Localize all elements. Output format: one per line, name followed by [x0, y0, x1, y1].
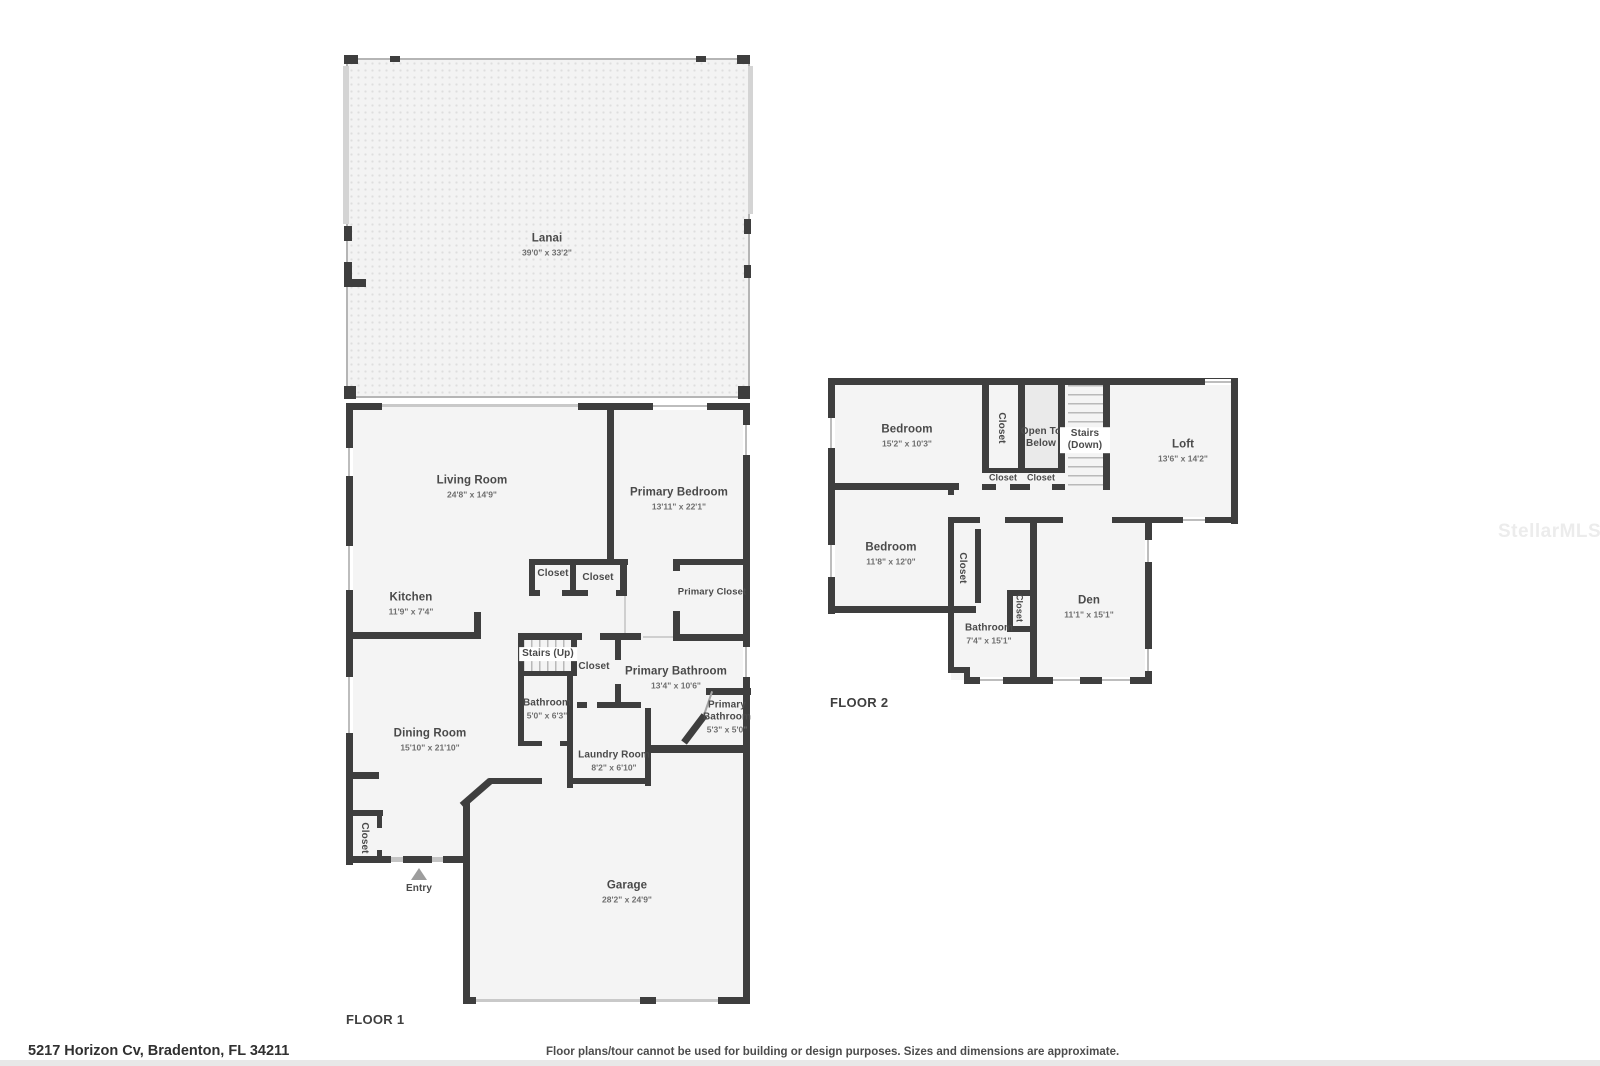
- room-name: Primary Closet: [678, 586, 746, 597]
- wall: [743, 403, 750, 425]
- property-address: 5217 Horizon Cv, Bradenton, FL 34211: [28, 1043, 289, 1059]
- wall: [828, 378, 835, 418]
- room-label-bathroom: Bathroom 5'0" x 6'3": [523, 698, 571, 721]
- opening-line: [643, 636, 673, 638]
- wall: [578, 403, 653, 410]
- wall: [828, 378, 1238, 385]
- wall: [1018, 378, 1025, 470]
- wall: [616, 590, 627, 596]
- room-label-closet: Closet: [1014, 594, 1025, 622]
- wall: [743, 455, 750, 647]
- room-dims: 13'4" x 10'6": [625, 680, 727, 690]
- room-dims: 7'4" x 15'1": [965, 635, 1013, 645]
- room-label-primary-bathroom-2: Primary Bathroom 5'3" x 5'0": [696, 700, 758, 735]
- room-dims: 28'2" x 24'9": [602, 894, 652, 904]
- screen-panel: [343, 66, 349, 224]
- room-name: Bathroom: [965, 623, 1013, 635]
- room-label-living-room: Living Room 24'8" x 14'9": [437, 475, 508, 500]
- room-label-den: Den 11'1" x 15'1": [1064, 595, 1113, 620]
- room-name: Bathroom: [523, 698, 571, 710]
- room-label-closet: Closet: [989, 473, 1017, 484]
- wall: [1010, 484, 1030, 490]
- room-name: Primary Bathroom: [696, 700, 758, 724]
- wall: [443, 856, 470, 863]
- room-dims: 11'8" x 12'0": [865, 556, 916, 566]
- room-name: Bedroom: [881, 424, 932, 438]
- wall: [529, 559, 628, 565]
- room-name: Loft: [1158, 439, 1208, 453]
- lanai-post: [344, 279, 366, 287]
- wall: [463, 997, 476, 1004]
- room-label-lanai: Lanai 39'0" x 33'2": [522, 233, 572, 258]
- window-marker: [1145, 649, 1152, 671]
- room-label-stairs-up: Stairs (Up): [519, 647, 577, 661]
- wall: [518, 741, 542, 746]
- wall: [828, 483, 959, 490]
- wall: [673, 559, 750, 565]
- wall: [1231, 378, 1238, 524]
- floor1-title: FLOOR 1: [346, 1012, 404, 1027]
- room-name: Closet: [995, 412, 1007, 443]
- screen-panel: [748, 66, 753, 214]
- floorplan-canvas: Lanai 39'0" x 33'2" Living Room 24'8" x …: [0, 0, 1600, 1066]
- room-label-dining-room: Dining Room 15'10" x 21'10": [394, 728, 467, 753]
- room-label-garage: Garage 28'2" x 24'9": [602, 880, 652, 905]
- wall: [377, 816, 382, 828]
- wall: [718, 997, 750, 1004]
- lanai-post: [744, 219, 751, 234]
- wall: [346, 632, 481, 639]
- wall: [529, 590, 540, 596]
- wall: [346, 733, 353, 865]
- room-name: Closet: [956, 552, 968, 583]
- lanai-post: [696, 56, 706, 62]
- room-dims: 15'10" x 21'10": [394, 742, 467, 752]
- wall: [948, 606, 954, 667]
- room-name: Lanai: [522, 233, 572, 247]
- room-name: Garage: [602, 880, 652, 894]
- room-label-loft: Loft 13'6" x 14'2": [1158, 439, 1208, 464]
- lanai-post: [390, 56, 400, 62]
- window-marker: [980, 677, 1003, 684]
- room-label-kitchen: Kitchen 11'9" x 7'4": [389, 592, 434, 617]
- wall: [948, 523, 954, 606]
- room-name: Primary Bedroom: [630, 487, 728, 501]
- room-name: Primary Bathroom: [625, 666, 727, 680]
- window-marker: [1145, 540, 1152, 562]
- lanai-post: [344, 226, 352, 241]
- wall: [474, 612, 481, 639]
- room-dims: 5'0" x 6'3": [523, 710, 571, 720]
- room-label-bathroom-2: Bathroom 7'4" x 15'1": [965, 623, 1013, 646]
- wall: [597, 702, 641, 708]
- wall: [1052, 484, 1065, 490]
- wall: [562, 590, 588, 596]
- wall: [1058, 378, 1065, 470]
- wall: [346, 856, 391, 863]
- wall: [828, 448, 835, 545]
- room-name: Entry: [406, 883, 432, 895]
- wall: [573, 778, 651, 784]
- window-marker: [743, 647, 750, 677]
- room-label-closet: Closet: [582, 572, 613, 584]
- wall: [346, 476, 353, 546]
- room-name: Closet: [358, 822, 370, 853]
- wall: [982, 378, 989, 470]
- room-label-primary-bedroom: Primary Bedroom 13'11" x 22'1": [630, 487, 728, 512]
- room-label-closet: Closet: [995, 412, 1007, 443]
- room-dims: 15'2" x 10'3": [881, 438, 932, 448]
- lanai-post: [737, 55, 750, 64]
- room-name: Closet: [578, 661, 609, 673]
- garage-door-opening: [476, 999, 640, 1002]
- room-label-bedroom-2: Bedroom 11'8" x 12'0": [865, 542, 916, 567]
- window-marker: [346, 546, 353, 590]
- wall: [615, 684, 621, 703]
- garage-interior: [463, 750, 747, 1002]
- floor2-title: FLOOR 2: [830, 695, 888, 710]
- window-marker: [1183, 517, 1205, 523]
- room-name: Kitchen: [389, 592, 434, 606]
- wall: [640, 997, 656, 1004]
- lanai-post: [738, 386, 750, 399]
- room-label-hall-closet: Closet: [578, 661, 609, 673]
- entry-label: Entry: [406, 883, 432, 895]
- lanai-post: [744, 265, 751, 278]
- window-marker: [346, 448, 353, 476]
- lanai-post: [344, 55, 358, 64]
- room-name: Stairs (Down): [1063, 428, 1107, 452]
- stellar-mls-watermark: StellarMLS: [1498, 521, 1600, 543]
- wall: [489, 778, 542, 784]
- room-label-laundry-room: Laundry Room 8'2" x 6'10": [578, 750, 650, 773]
- opening-line: [624, 596, 626, 634]
- room-label-closet: Closet: [956, 552, 968, 583]
- room-label-closet: Closet: [537, 568, 568, 580]
- window-marker: [346, 677, 353, 733]
- wall: [1030, 523, 1037, 683]
- window-marker: [828, 545, 835, 577]
- wall: [346, 403, 353, 448]
- lanai-area: [346, 58, 750, 398]
- wall: [615, 640, 621, 660]
- room-dims: 11'1" x 15'1": [1064, 609, 1113, 619]
- room-dims: 39'0" x 33'2": [522, 247, 572, 257]
- wall: [975, 529, 981, 603]
- room-name: Den: [1064, 595, 1113, 609]
- wall: [403, 856, 432, 863]
- wall: [948, 483, 954, 495]
- room-name: Laundry Room: [578, 750, 650, 762]
- room-name: Closet: [1027, 473, 1055, 484]
- room-name: Closet: [989, 473, 1017, 484]
- room-label-primary-bathroom: Primary Bathroom 13'4" x 10'6": [625, 666, 727, 691]
- wall: [346, 772, 379, 779]
- door-threshold: [391, 857, 403, 862]
- room-dims: 8'2" x 6'10": [578, 762, 650, 772]
- room-label-stairs-down: Stairs (Down): [1060, 427, 1110, 453]
- room-label-entry-closet: Closet: [358, 822, 370, 853]
- window-marker: [653, 403, 707, 410]
- wall: [463, 803, 470, 1003]
- bottom-divider-bar: [0, 1060, 1600, 1066]
- window-marker: [743, 425, 750, 455]
- window-marker: [1053, 677, 1080, 684]
- lanai-post: [344, 386, 356, 399]
- garage-door-opening: [656, 999, 718, 1002]
- room-name: Stairs (Up): [522, 648, 574, 660]
- window-marker: [1205, 379, 1231, 385]
- window-marker: [1102, 677, 1130, 684]
- room-dims: 24'8" x 14'9": [437, 489, 508, 499]
- room-dims: 5'3" x 5'0": [696, 724, 758, 734]
- wall: [607, 403, 614, 559]
- sliding-door-opening: [382, 404, 578, 407]
- room-name: Closet: [537, 568, 568, 580]
- entry-arrow-icon: [411, 868, 427, 880]
- room-label-closet: Closet: [1027, 473, 1055, 484]
- wall: [600, 633, 641, 640]
- room-name: Bedroom: [865, 542, 916, 556]
- room-dims: 13'11" x 22'1": [630, 501, 728, 511]
- room-name: Living Room: [437, 475, 508, 489]
- wall: [651, 745, 750, 753]
- room-label-bedroom-1: Bedroom 15'2" x 10'3": [881, 424, 932, 449]
- wall: [577, 702, 587, 708]
- wall: [982, 484, 996, 490]
- door-threshold: [432, 857, 443, 862]
- room-dims: 11'9" x 7'4": [389, 606, 434, 616]
- wall: [673, 634, 750, 641]
- room-name: Closet: [1014, 594, 1025, 622]
- window-marker: [828, 418, 835, 448]
- wall: [1205, 517, 1233, 523]
- disclaimer-text: Floor plans/tour cannot be used for buil…: [546, 1046, 1119, 1058]
- room-name: Dining Room: [394, 728, 467, 742]
- room-name: Closet: [582, 572, 613, 584]
- wall: [673, 559, 680, 571]
- room-dims: 13'6" x 14'2": [1158, 453, 1208, 463]
- room-label-primary-closet: Primary Closet: [678, 586, 746, 597]
